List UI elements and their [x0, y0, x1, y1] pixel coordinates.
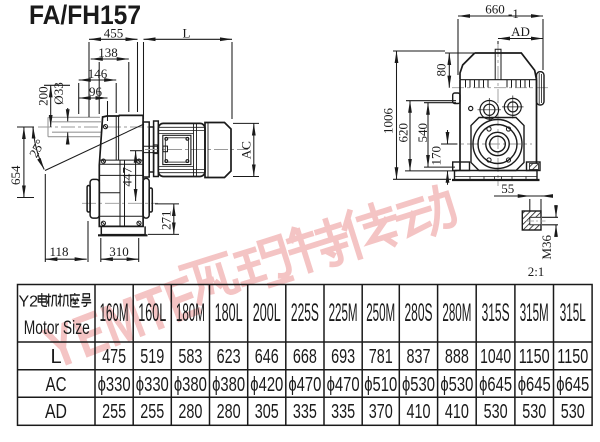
svg-text:ϕ380: ϕ380	[212, 374, 245, 396]
svg-text:315L: 315L	[560, 299, 586, 327]
svg-text:530: 530	[561, 401, 585, 423]
svg-text:837: 837	[407, 346, 431, 368]
svg-text:310: 310	[109, 244, 129, 259]
svg-text:FA/FH157: FA/FH157	[29, 0, 141, 30]
svg-text:280: 280	[178, 401, 202, 423]
svg-text:646: 646	[255, 346, 279, 368]
svg-text:200L: 200L	[253, 299, 281, 327]
svg-text:530: 530	[484, 401, 508, 423]
svg-text:668: 668	[293, 346, 317, 368]
svg-text:180M: 180M	[176, 299, 205, 327]
svg-text:AD: AD	[511, 24, 530, 39]
svg-text:Y2: Y2	[19, 294, 39, 311]
svg-text:888: 888	[445, 346, 469, 368]
svg-text:200: 200	[35, 86, 50, 106]
svg-text:410: 410	[407, 401, 431, 423]
svg-text:540: 540	[415, 123, 430, 143]
svg-text:623: 623	[217, 346, 241, 368]
svg-text:410: 410	[445, 401, 469, 423]
svg-text:138: 138	[98, 45, 118, 60]
svg-text:370: 370	[369, 401, 393, 423]
svg-text:250M: 250M	[366, 299, 395, 327]
svg-text:146: 146	[88, 66, 108, 81]
svg-text:ϕ420: ϕ420	[250, 374, 283, 396]
svg-text:Ø33: Ø33	[51, 82, 66, 104]
svg-text:2:1: 2:1	[528, 264, 545, 279]
svg-text:ϕ530: ϕ530	[440, 374, 473, 396]
svg-text:280M: 280M	[442, 299, 471, 327]
svg-text:255: 255	[140, 401, 164, 423]
svg-text:160M: 160M	[100, 299, 129, 327]
svg-text:660: 660	[485, 2, 505, 17]
svg-text:ϕ330: ϕ330	[98, 374, 131, 396]
svg-text:ϕ510: ϕ510	[364, 374, 397, 396]
svg-text:335: 335	[331, 401, 355, 423]
svg-text:ϕ330: ϕ330	[136, 374, 169, 396]
svg-text:620: 620	[396, 123, 411, 143]
svg-text:271: 271	[159, 211, 174, 231]
svg-text:475: 475	[102, 346, 126, 368]
svg-text:AC: AC	[239, 141, 254, 159]
svg-text:530: 530	[522, 401, 546, 423]
svg-text:583: 583	[178, 346, 202, 368]
svg-text:160L: 160L	[138, 299, 166, 327]
svg-text:225S: 225S	[291, 299, 319, 327]
svg-text:80: 80	[434, 64, 449, 77]
svg-text:315M: 315M	[520, 299, 549, 327]
svg-text:AD: AD	[45, 401, 67, 423]
svg-text:ϕ645: ϕ645	[479, 374, 512, 396]
svg-text:Motor Size: Motor Size	[24, 318, 90, 339]
svg-text:ϕ470: ϕ470	[288, 374, 321, 396]
svg-text:L: L	[50, 346, 61, 368]
svg-text:ϕ645: ϕ645	[518, 374, 551, 396]
svg-text:1040: 1040	[480, 346, 511, 368]
svg-text:781: 781	[369, 346, 393, 368]
svg-text:519: 519	[140, 346, 164, 368]
svg-text:280: 280	[217, 401, 241, 423]
svg-text:ϕ645: ϕ645	[556, 374, 589, 396]
svg-text:693: 693	[331, 346, 355, 368]
svg-text:654: 654	[8, 165, 23, 185]
svg-text:118: 118	[49, 244, 68, 259]
svg-text:ϕ530: ϕ530	[402, 374, 435, 396]
svg-text:ϕ380: ϕ380	[174, 374, 207, 396]
svg-text:-1: -1	[508, 6, 519, 21]
svg-text:315S: 315S	[482, 299, 510, 327]
svg-text:25°: 25°	[26, 137, 48, 160]
svg-text:455: 455	[104, 26, 124, 41]
svg-text:55: 55	[501, 181, 514, 196]
svg-text:L: L	[183, 25, 191, 40]
svg-text:255: 255	[102, 401, 126, 423]
svg-text:305: 305	[255, 401, 279, 423]
svg-text:280S: 280S	[405, 299, 433, 327]
svg-text:96: 96	[89, 84, 103, 99]
svg-text:ϕ470: ϕ470	[327, 374, 360, 396]
svg-text:170: 170	[429, 146, 444, 166]
svg-text:AC: AC	[46, 374, 67, 396]
svg-text:180L: 180L	[215, 299, 243, 327]
svg-text:1150: 1150	[519, 346, 550, 368]
svg-text:447: 447	[120, 167, 135, 187]
svg-text:1006: 1006	[381, 108, 396, 135]
svg-text:1150: 1150	[557, 346, 588, 368]
svg-text:225M: 225M	[329, 299, 358, 327]
svg-text:335: 335	[293, 401, 317, 423]
svg-text:M36: M36	[539, 235, 554, 260]
